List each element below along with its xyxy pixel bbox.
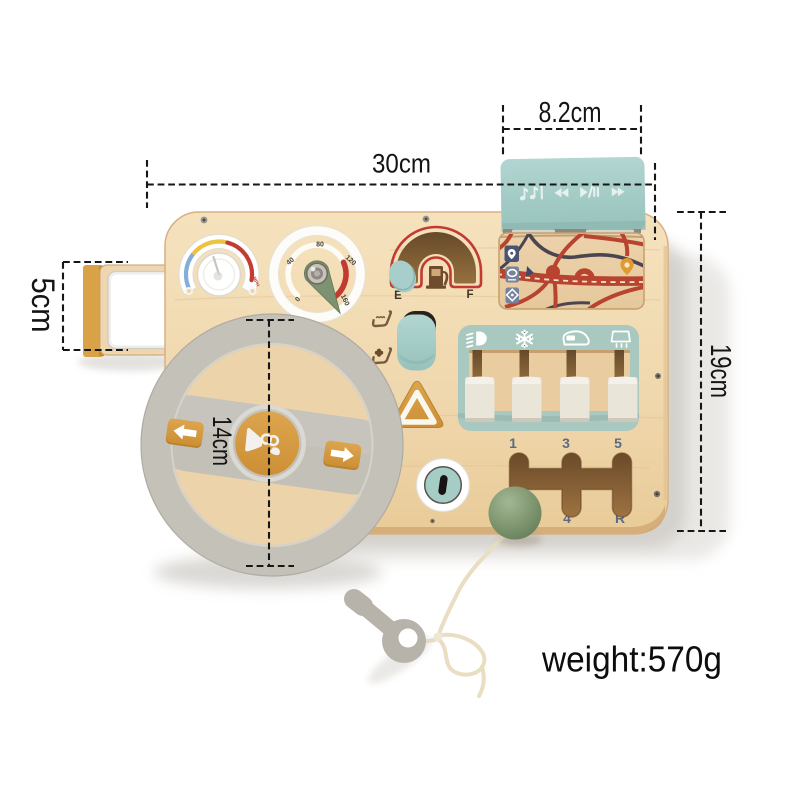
svg-text:19cm: 19cm [704, 344, 736, 398]
svg-text:1: 1 [509, 435, 517, 451]
svg-text:weight:570g: weight:570g [541, 639, 722, 680]
svg-text:80: 80 [316, 242, 324, 249]
svg-text:5cm: 5cm [25, 278, 61, 333]
svg-text:30cm: 30cm [372, 149, 431, 179]
svg-text:14cm: 14cm [207, 416, 237, 466]
svg-text:8.2cm: 8.2cm [539, 97, 602, 129]
svg-text:5: 5 [614, 435, 622, 451]
svg-text:F: F [466, 289, 473, 301]
svg-text:3: 3 [562, 435, 570, 451]
